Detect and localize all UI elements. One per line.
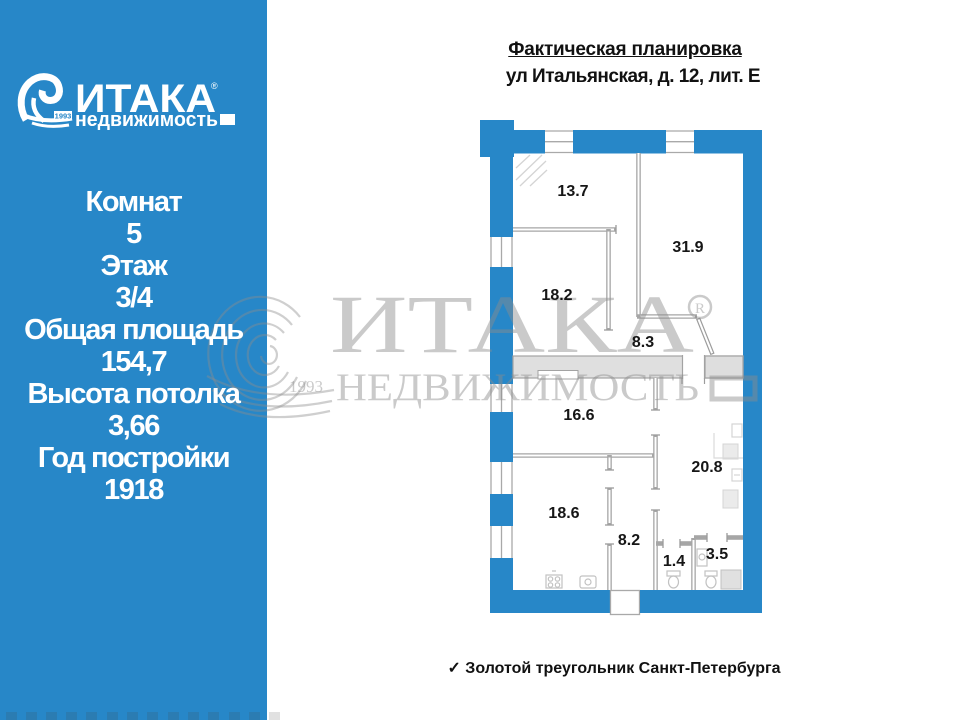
svg-text:ИТАКА: ИТАКА — [330, 278, 694, 370]
svg-text:недвижимость: недвижимость — [75, 109, 218, 131]
svg-text:18.6: 18.6 — [548, 505, 579, 522]
svg-text:16.6: 16.6 — [563, 407, 594, 424]
svg-text:31.9: 31.9 — [672, 239, 703, 256]
svg-text:3.5: 3.5 — [706, 546, 728, 563]
svg-text:НЕДВИЖИМОСТЬ: НЕДВИЖИМОСТЬ — [336, 366, 699, 409]
svg-text:8.2: 8.2 — [618, 532, 640, 549]
svg-text:20.8: 20.8 — [691, 459, 722, 476]
svg-text:R: R — [695, 301, 705, 317]
svg-text:18.2: 18.2 — [541, 287, 572, 304]
svg-text:1.4: 1.4 — [663, 553, 685, 570]
svg-text:1993: 1993 — [289, 377, 323, 396]
svg-text:8.3: 8.3 — [632, 334, 654, 351]
svg-text:1993: 1993 — [55, 112, 72, 121]
svg-text:13.7: 13.7 — [557, 183, 588, 200]
svg-text:®: ® — [211, 81, 218, 91]
